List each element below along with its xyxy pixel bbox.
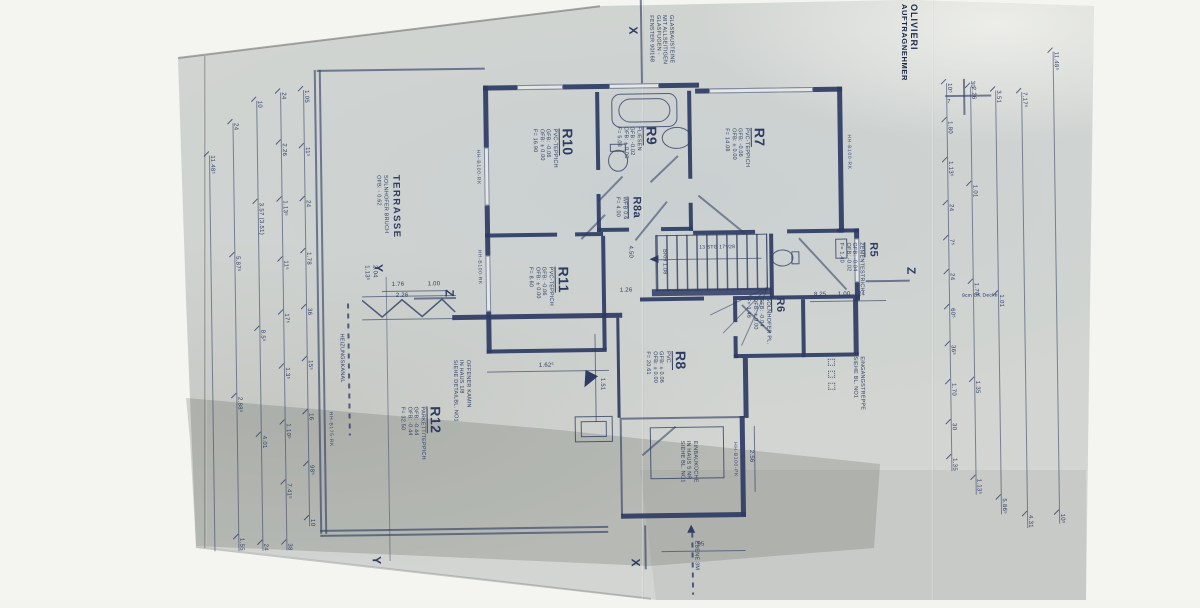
window <box>609 83 659 89</box>
dimension-value: 1.55 <box>238 538 244 551</box>
wall-segment <box>616 318 620 418</box>
dimension-value: 2.26 <box>396 293 409 299</box>
dimension-value: 1.70 <box>973 283 979 296</box>
dimension-value: 8.5⁵ <box>259 329 265 341</box>
wall-segment-thin <box>620 420 623 516</box>
dimension-chain-right-1: 10⁵1.801.13⁵247⁵2460⁵36⁵1.70301.35 <box>946 83 957 471</box>
dimension-value: 24 <box>949 273 955 280</box>
dimension-value: 7 <box>947 99 951 105</box>
note-glass-blocks: GLASBAUSTEINE MIT ALLSEITIGEN GLASFUGEN … <box>648 15 675 64</box>
wall-segment <box>661 227 693 231</box>
dimension-value: 10⁵ <box>946 83 952 93</box>
entry-step <box>828 383 835 390</box>
dimension-chain-left-2: 245.87⁵2.88⁵1.55 <box>232 123 244 551</box>
wall-segment <box>485 233 557 238</box>
room-label-r8a: R8a WFB 0.6 F= 4.00 <box>615 196 647 219</box>
reference-cross-line <box>945 95 991 97</box>
wall-segment <box>801 299 806 357</box>
room-label-r9: R9 FLIESEN GFB: -0.02 OFB: ± 0.00 F= 5.0… <box>616 126 660 158</box>
dimension-value: 2.88⁵ <box>236 397 242 413</box>
dimension-value: 2.56 <box>748 450 754 463</box>
dimension-value: 1.10⁵ <box>285 424 291 440</box>
dimension-value: 5.86⁵ <box>1001 499 1007 515</box>
dimension-value: 1.70 <box>950 383 956 396</box>
dimension-value: 16 <box>308 413 314 420</box>
wall-segment <box>743 358 749 418</box>
dimension-value: 1.80 <box>947 121 953 134</box>
wall-segment <box>595 92 600 170</box>
wall-segment <box>487 348 607 354</box>
wall-type-label: HH-B175-RK <box>328 412 334 447</box>
room-id: R9 <box>643 126 658 145</box>
room-label-r5: R5 ZEMENTESTRICH GFB: -0.04 OFB: -0.02 F… <box>838 242 884 292</box>
dimension-value: 8.25 <box>814 292 827 298</box>
room-label-r12: R12 PARKETT/TEPPICH GFB: -0.44 OFB: -0.4… <box>399 406 444 460</box>
note-sill-height: BRH 1.08 <box>661 249 668 275</box>
dimension-value: 24 <box>280 92 286 99</box>
dimension-chain-right-2: 2.261.011.701.351.13⁵ <box>970 87 982 495</box>
room-label-r11: R11 PVC-TEPPICH GFB: -0.06 OFB: ± 0.00 F… <box>528 266 573 306</box>
dimension-value: 11.48⁵ <box>209 155 215 174</box>
room-id: R6 <box>771 297 786 312</box>
dimension-value: 10⁵ <box>1059 513 1065 523</box>
dimension-value: 7.41⁵ <box>286 483 292 499</box>
dim-line <box>382 290 448 292</box>
bathtub-inner <box>618 98 670 123</box>
dimension-chain-right-3: 3.511.015.86⁵ <box>995 90 1007 514</box>
dimension-value: 24 <box>858 291 865 297</box>
wall-segment <box>621 512 746 519</box>
dimension-chain-right-4: 7.17⁵4.31 <box>1021 92 1033 528</box>
wall-segment <box>601 236 607 350</box>
scanned-floor-plan-page: AUFTRAGNEHMER OLIVIERI X X Y Y Z Z <box>0 0 1200 600</box>
wall-segment <box>483 83 699 91</box>
section-marker-y-bottom: Y <box>370 556 384 564</box>
window <box>709 87 813 93</box>
dimension-value: 7⁵ <box>948 239 954 246</box>
entry-step <box>828 359 835 366</box>
wc-toilet-bowl <box>771 249 793 266</box>
dimension-chain-left-1: 11.48⁵ <box>209 155 221 551</box>
room-label-r8: R8 PVC GFB: ± 0.06 OFB: ± 0.00 F= 20.61 <box>645 351 689 383</box>
room-label-r6: R6 SOLNHOFER PL. GFB: -0.04 OFB: ± 0.00 … <box>745 297 791 344</box>
dimension-value: 2.04 <box>371 265 377 278</box>
wall-segment <box>452 313 622 320</box>
room-label-r10: R10 PVC-TEPPICH GFB: -0.06 OFB: ± 0.00 F… <box>532 128 577 168</box>
dimension-value: 3.57 (3.51) <box>258 203 264 235</box>
dimension-value: 30 <box>951 423 957 430</box>
wall-segment <box>485 206 491 256</box>
dimension-value: 1.51 <box>599 378 605 391</box>
dimension-value: 1.26 <box>620 288 633 294</box>
dimension-value: 1.00 <box>838 292 851 298</box>
dimension-chain-left-4: 242.261.13⁵11⁵17⁵1.3⁵1.10⁵7.41⁵38 <box>280 92 292 550</box>
dimension-chain-left-5: 1.0511⁵241.783615⁵1698⁵10 <box>303 90 315 526</box>
dimension-value: 1.13⁵ <box>282 200 288 216</box>
room-id: R5 <box>864 242 879 257</box>
dimension-value: 24 <box>948 204 954 211</box>
dimension-value: 3.51 <box>995 90 1001 103</box>
dimension-value: 1.05 <box>303 90 309 103</box>
door-swing <box>650 155 678 182</box>
dimension-value: 36 <box>306 308 312 315</box>
room-id: R10 <box>559 128 574 155</box>
dimension-value: 11.48⁵ <box>1053 52 1059 71</box>
wall-segment <box>575 232 603 236</box>
dimension-value: 24 <box>305 200 311 207</box>
room-id: R11 <box>555 266 570 293</box>
entry-step <box>828 371 835 378</box>
room-id: R8a <box>628 196 643 218</box>
dimension-value: 24 <box>232 123 238 130</box>
dimension-value: 1.76 <box>392 282 405 288</box>
dim-line <box>662 550 746 552</box>
door-swing <box>698 195 745 234</box>
area-label-terrasse: TERRASSE SOLNHOFER BRUCH OFB: - 0.62 <box>375 175 407 239</box>
section-marker-x-bottom: X <box>629 558 643 566</box>
section-marker-x-top: X <box>626 26 640 34</box>
wall-segment <box>853 298 859 354</box>
dimension-value: 36⁵ <box>950 345 956 355</box>
wall-segment <box>740 416 746 516</box>
wall-type-label: HH-B100-RK <box>846 134 852 169</box>
dimension-value: 4.01 <box>261 436 267 449</box>
dimension-value: 11⁵ <box>282 260 288 270</box>
wall-segment-thin <box>620 416 744 420</box>
wall-segment <box>837 87 844 233</box>
room-id: R12 <box>426 406 441 433</box>
wall-segment <box>483 86 489 148</box>
fireplace-inner <box>581 421 607 437</box>
dimension-value: 1.35 <box>974 381 980 394</box>
dimension-value: 1.13⁵ <box>947 161 953 177</box>
room-id: R8 <box>672 351 687 370</box>
wc-toilet-tank <box>791 251 799 264</box>
terrace-edge <box>320 531 608 537</box>
dimension-value: 98⁵ <box>308 465 314 475</box>
wall-segment <box>787 229 843 234</box>
window <box>485 256 491 312</box>
dimension-value: 4.50 <box>627 246 633 259</box>
wall-type-label: HH-B100-PK <box>732 442 738 477</box>
dimension-value: 2.26 <box>970 87 976 100</box>
dimension-value: 17⁵ <box>283 314 289 324</box>
floor-plan-drawing: X X Y Y Z Z <box>0 0 1200 608</box>
dim-line <box>810 300 886 302</box>
dimension-value: 5.87⁵ <box>234 256 240 272</box>
window <box>517 84 563 90</box>
note-heating-duct: HEIZUNGSKANAL <box>338 334 345 383</box>
dimension-value: 1.78 <box>305 252 311 265</box>
dimension-value: 10 <box>256 101 262 108</box>
note-stair-count: 13 STG 17⁵/28 <box>699 244 735 251</box>
section-marker-z-right: Z <box>904 267 918 275</box>
dimension-value: 1.35 <box>951 458 957 471</box>
note-built-in-kitchen: EINBAUKÜCHE IN HAUS 5 NR SIEHE BL. NO1 <box>678 441 698 483</box>
dimension-value: 30 <box>969 81 975 88</box>
dimension-value: 1.62⁵ <box>539 363 554 369</box>
dimension-value: 2.26 <box>281 144 287 157</box>
window <box>484 148 490 206</box>
dimension-value: 38 <box>286 543 292 550</box>
dimension-chain-left-3: 103.57 (3.51)8.5⁵4.0124 <box>256 101 268 551</box>
dimension-value: 1.13⁵ <box>976 479 982 495</box>
dimension-value: 1.01 <box>998 295 1004 308</box>
note-fireplace: OFFENER KAMIN IN HAUS 1/8 SIEHE DETAILBL… <box>451 360 471 422</box>
dimension-value: 10 <box>309 519 315 526</box>
dimension-value: 11⁵ <box>304 147 310 157</box>
wall-type-label: HH-B100-RK <box>476 250 482 285</box>
note-entrance-stairs: EINGANGSTREPPE SIEHE BL. NO1 <box>852 356 866 410</box>
reference-cross-line <box>963 79 965 115</box>
room-id: R7 <box>751 128 766 147</box>
terrace-edge <box>317 68 485 72</box>
section-line-x-bottom <box>644 525 646 569</box>
dimension-value: 1.3⁵ <box>284 368 290 380</box>
stair-walkline-arrow <box>649 255 658 263</box>
dimension-chain-right-5: 11.48⁵10⁵ <box>1053 52 1066 524</box>
dimension-value: 1.01 <box>971 185 977 198</box>
dimension-value: 24 <box>262 543 268 550</box>
dimension-value: 4.31 <box>1027 515 1033 528</box>
dimension-value: 60⁵ <box>949 308 955 318</box>
room-label-r7: R7 PVC-TEPPICH GFB: -0.06 OFB: ± 0.00 F=… <box>724 128 769 168</box>
wall-segment <box>640 297 704 302</box>
dimension-value: 15⁵ <box>307 360 313 370</box>
dimension-value: 95 <box>697 542 704 548</box>
dimension-value: 1.00 <box>428 281 441 287</box>
reference-arrowhead <box>687 525 695 533</box>
area-id: TERRASSE <box>390 175 401 239</box>
wall-type-label: HH-B100-RK <box>475 150 481 185</box>
dimension-value: 1.13⁵ <box>363 265 369 280</box>
dimension-value: 7.17⁵ <box>1021 92 1027 108</box>
heating-duct-line <box>347 304 350 436</box>
section-line-x-top <box>640 0 643 85</box>
staircase <box>655 234 768 292</box>
